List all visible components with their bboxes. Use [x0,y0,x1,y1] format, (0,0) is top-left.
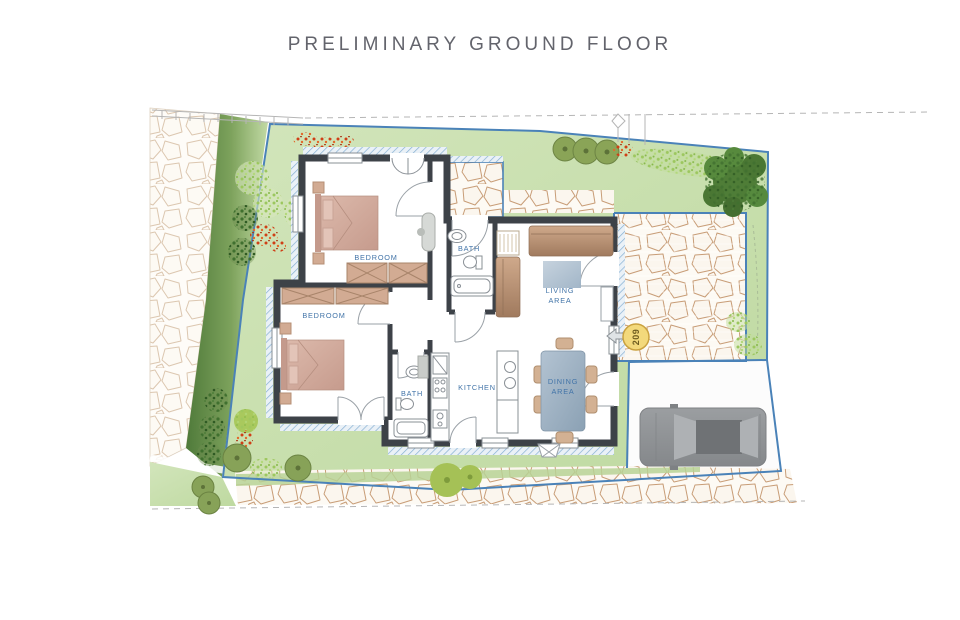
large-tree [703,147,768,217]
floor-plan-page: PRELIMINARY GROUND FLOOR [0,0,960,620]
label-bath1: BATH [458,244,480,253]
label-kitchen: KITCHEN [458,383,496,392]
label-bath2: BATH [401,389,423,398]
label-dining-1: DINING [548,377,578,386]
label-bedroom2: BEDROOM [302,311,345,320]
label-living-2: AREA [548,296,571,305]
unit-number: 209 [631,329,641,346]
site-plan-drawing: BEDROOM BEDROOM BATH BATH KITCHEN LIVING… [0,0,960,620]
car-icon [640,404,766,470]
label-bedroom1: BEDROOM [354,253,397,262]
label-living-1: LIVING [546,286,575,295]
unit-badge: 209 [623,324,649,350]
label-dining-2: AREA [551,387,574,396]
